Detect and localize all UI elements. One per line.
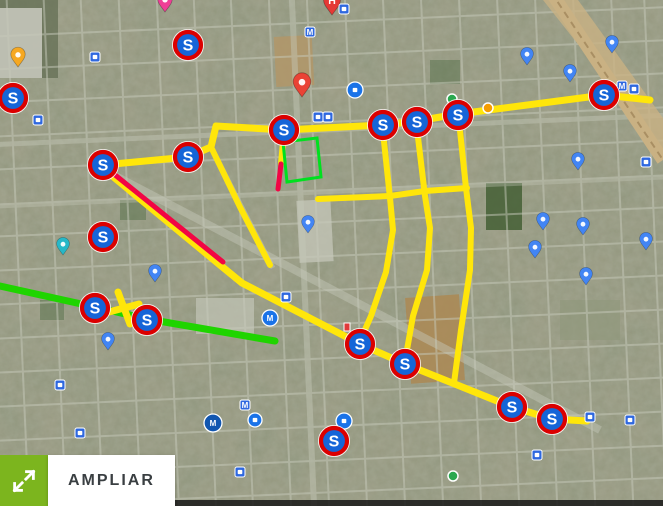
station-marker[interactable]: S — [390, 349, 421, 380]
station-glyph: S — [183, 150, 194, 167]
poi-icon[interactable] — [339, 4, 349, 14]
station-marker[interactable]: S — [443, 100, 474, 131]
poi-icon[interactable] — [585, 412, 595, 422]
dot-marker[interactable] — [483, 103, 493, 113]
svg-text:M: M — [619, 82, 626, 91]
poi-icon[interactable] — [90, 52, 100, 62]
poi-icon[interactable] — [75, 428, 85, 438]
station-glyph: S — [599, 88, 610, 105]
poi-icon[interactable] — [532, 450, 542, 460]
station-glyph: S — [507, 400, 518, 417]
station-marker[interactable]: S — [402, 107, 433, 138]
station-marker[interactable]: S — [269, 115, 300, 146]
svg-text:M: M — [267, 314, 274, 323]
poi-icon[interactable] — [313, 112, 323, 122]
station-glyph: S — [8, 91, 19, 108]
poi-icon[interactable] — [625, 415, 635, 425]
trees-patch — [430, 60, 460, 84]
poi-icon[interactable] — [248, 413, 262, 427]
metro-icon[interactable]: M — [305, 27, 315, 37]
station-glyph: S — [453, 108, 464, 125]
station-glyph: S — [142, 313, 153, 330]
svg-text:H: H — [328, 0, 336, 7]
metro-icon[interactable]: M — [240, 400, 250, 410]
map-viewport: H MMMMM SSSSSSSSSSSSSSSSS AMPLIAR — [0, 0, 663, 506]
station-glyph: S — [279, 123, 290, 140]
station-marker[interactable]: S — [88, 222, 119, 253]
ampliar-label: AMPLIAR — [68, 472, 155, 490]
satellite-map[interactable]: H MMMMM SSSSSSSSSSSSSSSSS — [0, 0, 663, 506]
station-marker[interactable]: S — [368, 110, 399, 141]
station-marker[interactable]: S — [132, 305, 163, 336]
station-glyph: S — [378, 118, 389, 135]
station-glyph: S — [183, 38, 194, 55]
station-glyph: S — [98, 158, 109, 175]
station-marker[interactable]: S — [173, 142, 204, 173]
expand-button[interactable] — [0, 455, 48, 506]
svg-text:M: M — [307, 28, 314, 37]
station-marker[interactable]: S — [88, 150, 119, 181]
dot-marker[interactable] — [448, 471, 458, 481]
station-glyph: S — [329, 434, 340, 451]
poi-icon[interactable] — [641, 157, 651, 167]
expand-arrows-icon — [9, 466, 39, 496]
metro-icon[interactable]: M — [204, 414, 222, 432]
metro-icon[interactable]: M — [262, 310, 278, 326]
station-glyph: S — [400, 357, 411, 374]
station-marker[interactable]: S — [0, 83, 28, 114]
poi-icon[interactable] — [629, 84, 639, 94]
station-marker[interactable]: S — [537, 404, 568, 435]
mini-poi-marker[interactable] — [344, 323, 350, 331]
station-marker[interactable]: S — [80, 293, 111, 324]
ampliar-control[interactable]: AMPLIAR — [0, 455, 175, 506]
poi-icon[interactable] — [55, 380, 65, 390]
poi-icon[interactable] — [235, 467, 245, 477]
station-glyph: S — [98, 230, 109, 247]
station-glyph: S — [90, 301, 101, 318]
station-marker[interactable]: S — [589, 80, 620, 111]
ampliar-button[interactable]: AMPLIAR — [48, 455, 175, 506]
poi-icon[interactable] — [281, 292, 291, 302]
station-marker[interactable]: S — [345, 329, 376, 360]
station-glyph: S — [412, 115, 423, 132]
station-marker[interactable]: S — [497, 392, 528, 423]
svg-text:M: M — [242, 401, 249, 410]
station-marker[interactable]: S — [173, 30, 204, 61]
park-patch — [486, 183, 522, 230]
station-glyph: S — [547, 412, 558, 429]
poi-icon[interactable] — [347, 82, 363, 98]
route-vertical-1-red — [278, 164, 281, 189]
trees-patch — [560, 300, 620, 340]
poi-icon[interactable] — [33, 115, 43, 125]
station-marker[interactable]: S — [319, 426, 350, 457]
station-glyph: S — [355, 337, 366, 354]
svg-text:M: M — [210, 419, 217, 428]
poi-icon[interactable] — [323, 112, 333, 122]
